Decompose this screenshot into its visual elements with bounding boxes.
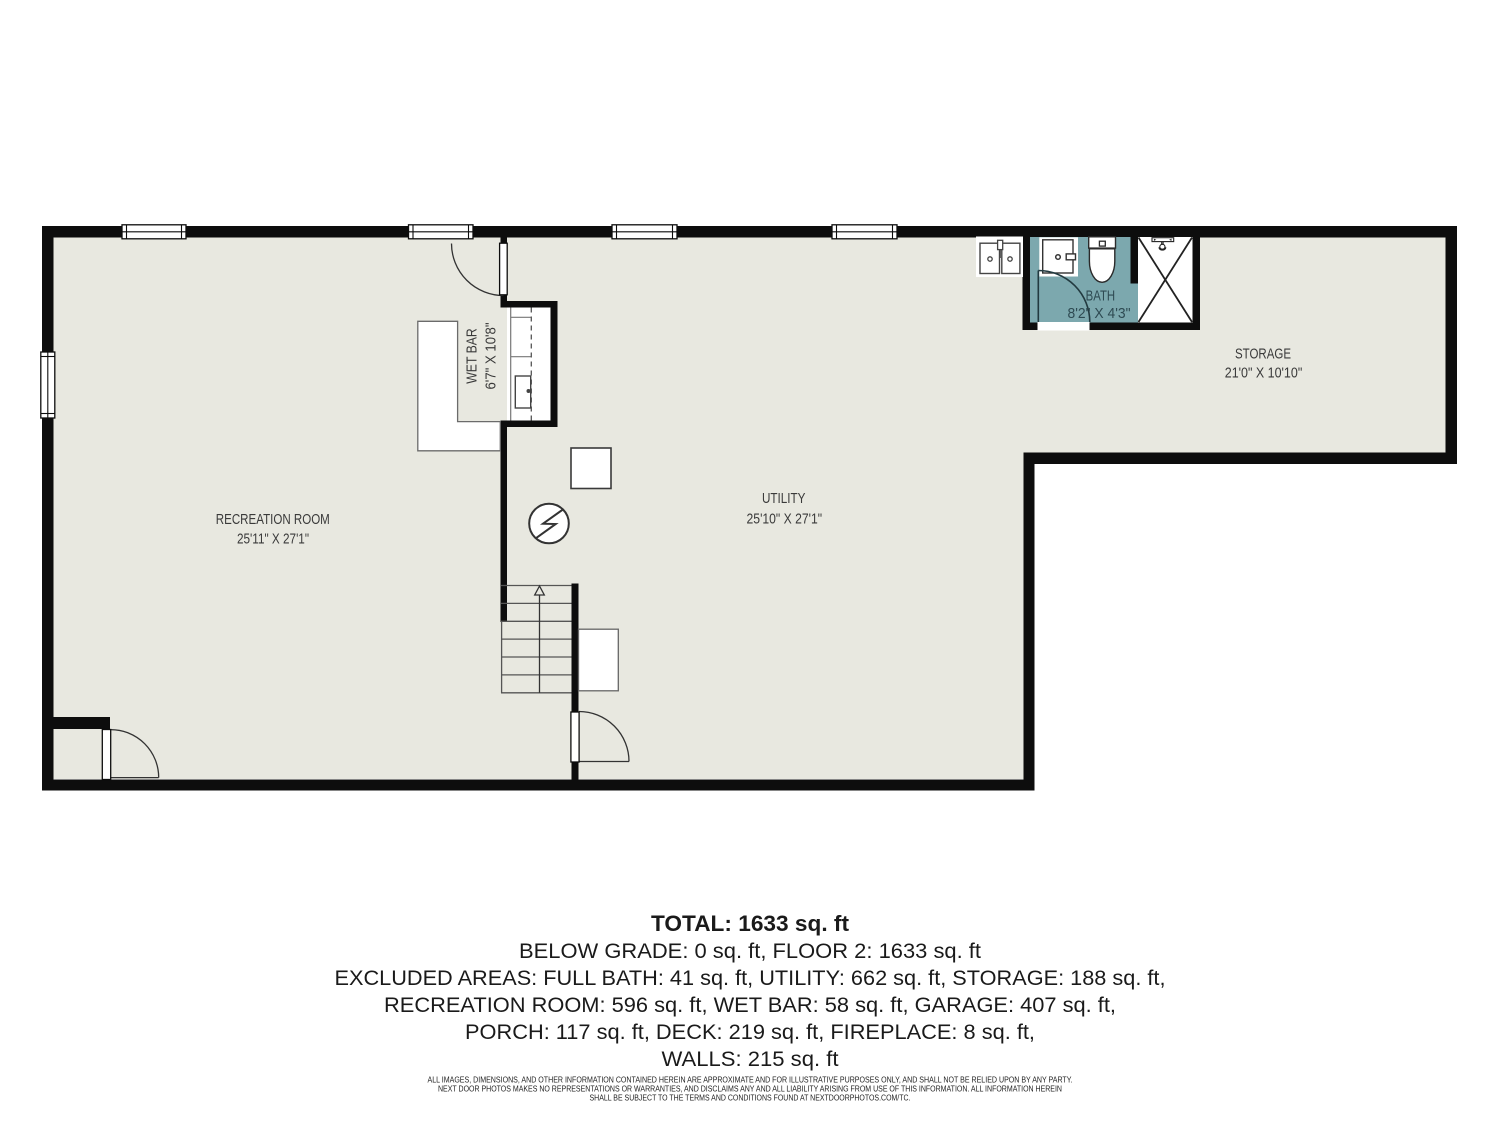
svg-text:UTILITY: UTILITY <box>762 490 806 507</box>
svg-text:25'11" X 27'1": 25'11" X 27'1" <box>237 531 309 548</box>
svg-text:SHALL BE SUBJECT TO THE TERMS: SHALL BE SUBJECT TO THE TERMS AND CONDIT… <box>590 1093 911 1103</box>
svg-text:25'10" X 27'1": 25'10" X 27'1" <box>747 511 823 528</box>
svg-text:BELOW GRADE: 0 sq. ft, FLOOR 2: BELOW GRADE: 0 sq. ft, FLOOR 2: 1633 sq.… <box>519 939 981 963</box>
svg-text:WALLS: 215 sq. ft: WALLS: 215 sq. ft <box>662 1047 839 1071</box>
svg-text:EXCLUDED AREAS: FULL BATH: 41: EXCLUDED AREAS: FULL BATH: 41 sq. ft, UT… <box>335 966 1166 990</box>
svg-text:RECREATION ROOM: 596 sq. ft, W: RECREATION ROOM: 596 sq. ft, WET BAR: 58… <box>384 993 1116 1017</box>
svg-text:STORAGE: STORAGE <box>1235 346 1291 362</box>
svg-text:8'2" X 4'3": 8'2" X 4'3" <box>1068 306 1131 322</box>
svg-text:6'7" X 10'8": 6'7" X 10'8" <box>483 323 500 390</box>
svg-text:WET BAR: WET BAR <box>464 328 481 384</box>
svg-text:RECREATION ROOM: RECREATION ROOM <box>216 511 330 528</box>
svg-text:TOTAL: 1633 sq. ft: TOTAL: 1633 sq. ft <box>651 911 850 936</box>
svg-text:BATH: BATH <box>1086 289 1116 305</box>
svg-text:PORCH: 117 sq. ft, DECK: 219 s: PORCH: 117 sq. ft, DECK: 219 sq. ft, FIR… <box>465 1020 1035 1044</box>
svg-text:21'0" X 10'10": 21'0" X 10'10" <box>1225 365 1303 381</box>
